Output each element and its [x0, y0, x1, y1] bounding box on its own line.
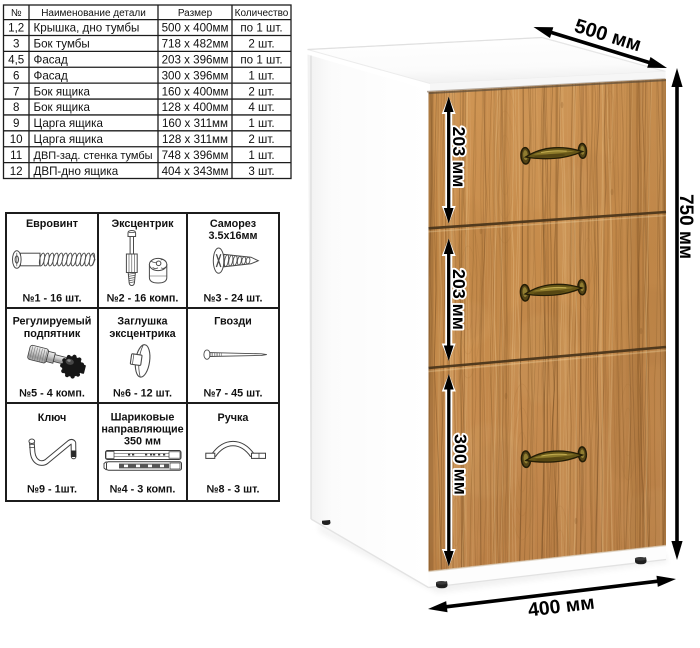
svg-text:11: 11 [10, 149, 22, 162]
svg-text:1 шт.: 1 шт. [248, 117, 274, 130]
svg-text:Евровинт: Евровинт [26, 218, 78, 230]
svg-text:8: 8 [13, 101, 19, 114]
svg-text:Размер: Размер [178, 8, 213, 19]
svg-text:1,2: 1,2 [8, 22, 24, 35]
svg-text:750 мм: 750 мм [675, 194, 696, 259]
svg-text:по 1 шт.: по 1 шт. [240, 54, 282, 67]
svg-text:№: № [11, 8, 22, 19]
svg-text:направляющие: направляющие [101, 424, 183, 436]
svg-text:203 х 396мм: 203 х 396мм [162, 54, 229, 67]
svg-text:748 х 396мм: 748 х 396мм [162, 149, 229, 162]
svg-text:128 х 400мм: 128 х 400мм [162, 101, 229, 114]
svg-text:Бок ящика: Бок ящика [34, 101, 91, 114]
svg-text:Крышка, дно тумбы: Крышка, дно тумбы [34, 22, 140, 35]
svg-text:128 х 311мм: 128 х 311мм [162, 133, 228, 146]
svg-text:7: 7 [13, 85, 19, 98]
svg-text:№4 - 3 комп.: №4 - 3 комп. [110, 484, 176, 496]
svg-text:2 шт.: 2 шт. [248, 38, 274, 51]
svg-text:4,5: 4,5 [8, 54, 24, 67]
svg-text:160 х 400мм: 160 х 400мм [162, 85, 229, 98]
svg-text:300 х 396мм: 300 х 396мм [162, 69, 229, 82]
svg-text:Шариковые: Шариковые [111, 412, 175, 424]
svg-text:№7 - 45 шт.: №7 - 45 шт. [204, 388, 263, 400]
svg-text:3.5х16мм: 3.5х16мм [209, 230, 258, 242]
svg-text:203 мм: 203 мм [449, 269, 469, 330]
svg-text:№5 - 4 комп.: №5 - 4 комп. [19, 388, 85, 400]
svg-text:718 х 482мм: 718 х 482мм [162, 38, 229, 51]
svg-text:Царга ящика: Царга ящика [34, 133, 104, 146]
svg-text:Эксцентрик: Эксцентрик [111, 218, 174, 230]
svg-text:6: 6 [13, 69, 19, 82]
svg-text:Заглушка: Заглушка [117, 316, 168, 328]
svg-text:Наименование детали: Наименование детали [41, 8, 146, 19]
svg-text:160 х 311мм: 160 х 311мм [162, 117, 228, 130]
svg-text:по 1 шт.: по 1 шт. [240, 22, 282, 35]
svg-text:№3 - 24 шт.: №3 - 24 шт. [204, 293, 263, 305]
svg-text:Фасад: Фасад [34, 54, 69, 67]
svg-text:Регулируемый: Регулируемый [13, 316, 92, 328]
svg-text:Гвозди: Гвозди [214, 316, 252, 328]
svg-text:ДВП-зад. стенка тумбы: ДВП-зад. стенка тумбы [34, 150, 153, 162]
svg-text:Фасад: Фасад [34, 69, 69, 82]
svg-text:12: 12 [10, 165, 23, 178]
svg-text:404 х 343мм: 404 х 343мм [162, 165, 229, 178]
svg-text:2 шт.: 2 шт. [248, 85, 274, 98]
svg-text:4 шт.: 4 шт. [248, 101, 274, 114]
svg-text:Ручка: Ручка [218, 412, 250, 424]
svg-text:Количество: Количество [235, 8, 289, 19]
svg-text:Царга ящика: Царга ящика [34, 117, 104, 130]
svg-text:№8 - 3 шт.: №8 - 3 шт. [207, 484, 260, 496]
svg-text:№9 - 1шт.: №9 - 1шт. [27, 484, 77, 496]
svg-text:№2 - 16 комп.: №2 - 16 комп. [107, 293, 179, 305]
svg-text:Бок тумбы: Бок тумбы [34, 38, 90, 51]
svg-text:10: 10 [10, 133, 23, 146]
svg-text:ДВП-дно ящика: ДВП-дно ящика [34, 165, 119, 178]
svg-text:1 шт.: 1 шт. [248, 149, 274, 162]
svg-text:300 мм: 300 мм [450, 434, 470, 495]
svg-text:эксцентрика: эксцентрика [109, 328, 176, 340]
svg-text:350 мм: 350 мм [124, 436, 161, 448]
svg-text:Саморез: Саморез [210, 218, 256, 230]
svg-text:2 шт.: 2 шт. [248, 133, 274, 146]
svg-text:Бок ящика: Бок ящика [34, 85, 91, 98]
svg-text:9: 9 [13, 117, 19, 130]
svg-text:подпятник: подпятник [24, 328, 81, 340]
svg-text:500 х 400мм: 500 х 400мм [162, 22, 229, 35]
svg-text:1 шт.: 1 шт. [248, 69, 274, 82]
svg-text:№1 - 16 шт.: №1 - 16 шт. [23, 293, 82, 305]
svg-text:№6 - 12 шт.: №6 - 12 шт. [113, 388, 172, 400]
svg-text:3 шт.: 3 шт. [248, 165, 274, 178]
svg-text:203 мм: 203 мм [449, 127, 469, 188]
svg-text:Ключ: Ключ [38, 412, 67, 424]
svg-text:3: 3 [13, 38, 19, 51]
